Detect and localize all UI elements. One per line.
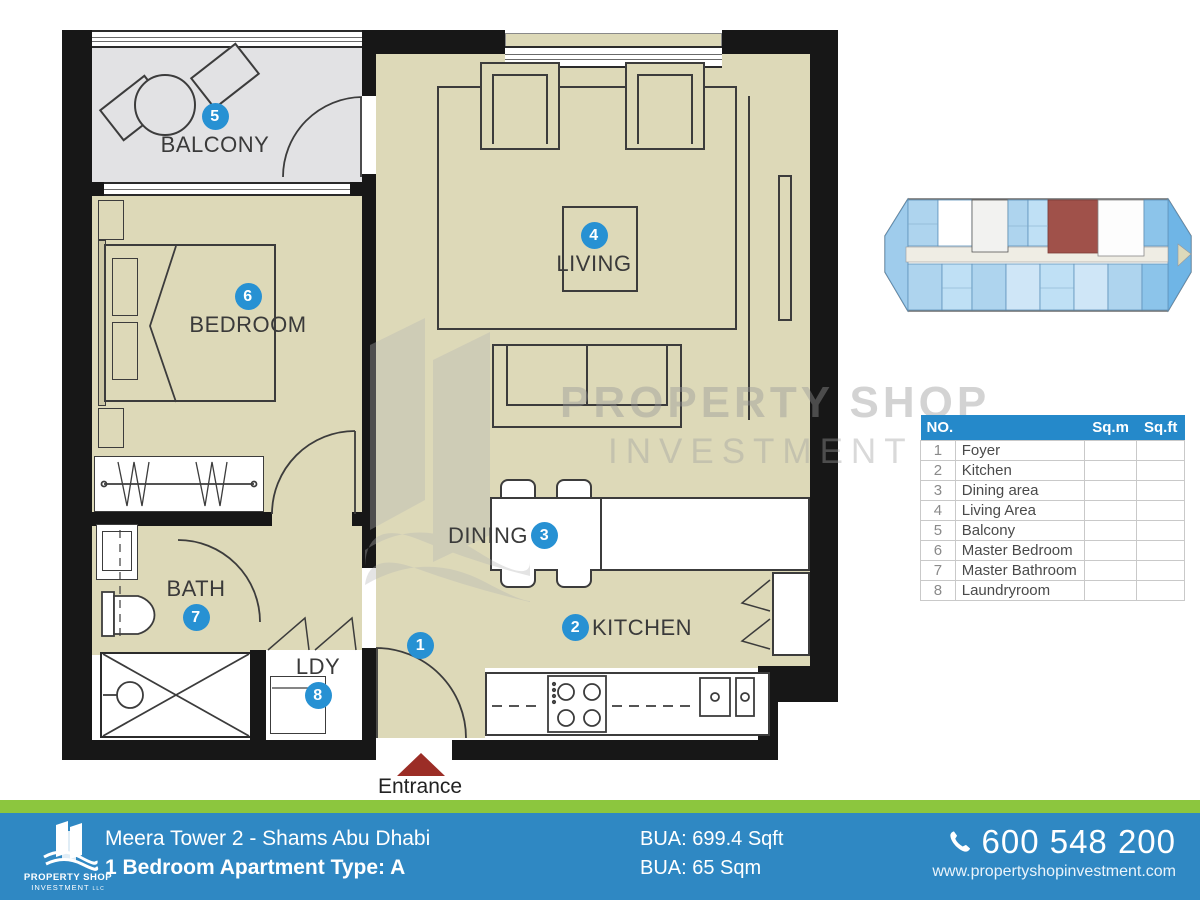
phone-row: 600 548 200	[932, 823, 1176, 861]
badge-ldy: 8	[305, 682, 332, 709]
table-row: 3Dining area	[921, 481, 1185, 501]
bua-sqm: BUA: 65 Sqm	[640, 857, 761, 880]
website: www.propertyshopinvestment.com	[932, 863, 1176, 881]
dining-label: DINING	[448, 523, 528, 549]
row-no: 3	[921, 481, 956, 501]
row-name: Balcony	[955, 521, 1084, 541]
property-shop-logo-icon	[22, 817, 114, 871]
footer-green-strip	[0, 800, 1200, 813]
logo-name: PROPERTY SHOP	[22, 872, 114, 883]
row-sqft	[1137, 441, 1185, 461]
armchair-2-inner	[637, 74, 693, 144]
row-sqm	[1084, 461, 1137, 481]
row-sqft	[1137, 521, 1185, 541]
bedroom-label: BEDROOM	[189, 312, 306, 338]
closet-column-line	[748, 96, 750, 420]
wall-left	[62, 30, 92, 760]
sofa-midline	[586, 346, 588, 404]
shower-floor	[100, 652, 252, 738]
row-no: 8	[921, 581, 956, 601]
dining-chair-2	[556, 479, 592, 498]
bedroom-window	[104, 182, 350, 196]
row-name: Laundryroom	[955, 581, 1084, 601]
phone-icon	[947, 829, 973, 855]
living-tag: 4 LIVING	[534, 222, 654, 277]
entrance-arrow	[397, 753, 445, 776]
wall-ldy-right	[362, 648, 376, 740]
footer-contact: 600 548 200 www.propertyshopinvestment.c…	[932, 823, 1176, 881]
bath-vanity-basin	[102, 531, 132, 571]
row-no: 1	[921, 441, 956, 461]
row-no: 2	[921, 461, 956, 481]
row-sqm	[1084, 541, 1137, 561]
unit-type: 1 Bedroom Apartment Type: A	[105, 856, 405, 880]
balcony-label: BALCONY	[161, 132, 270, 158]
wall-ldy-shower	[250, 650, 266, 740]
living-label: LIVING	[556, 251, 631, 277]
floorplan-flyer: { "colors": { "badge_blue": "#2791d3", "…	[0, 0, 1200, 900]
kitchen-tag: 2 KITCHEN	[562, 614, 692, 641]
badge-bath: 7	[183, 604, 210, 631]
row-name: Living Area	[955, 501, 1084, 521]
kitchen-label: KITCHEN	[592, 615, 692, 641]
area-table: NO. Sq.m Sq.ft 1Foyer 2Kitchen 3Dining a…	[920, 415, 1185, 601]
row-name: Master Bedroom	[955, 541, 1084, 561]
entrance-label: Entrance	[378, 775, 462, 799]
bath-label: BATH	[166, 576, 225, 602]
project-title: Meera Tower 2 - Shams Abu Dhabi	[105, 827, 430, 851]
row-no: 5	[921, 521, 956, 541]
balcony-tag: 5 BALCONY	[150, 103, 280, 158]
table-row: 2Kitchen	[921, 461, 1185, 481]
badge-kitchen: 2	[562, 614, 589, 641]
closet-column-shelf	[778, 175, 792, 321]
row-name: Master Bathroom	[955, 561, 1084, 581]
wall-bottom-main	[452, 740, 778, 760]
kitchen-peninsula	[600, 497, 810, 571]
badge-balcony: 5	[202, 103, 229, 130]
ldy-label: LDY	[296, 654, 340, 680]
row-sqft	[1137, 501, 1185, 521]
wall-balcwin-r	[350, 182, 362, 196]
kitchen-counter	[485, 672, 770, 736]
building-keyplan	[882, 196, 1194, 314]
row-sqft	[1137, 461, 1185, 481]
badge-bedroom: 6	[235, 283, 262, 310]
row-sqft	[1137, 481, 1185, 501]
badge-foyer: 1	[407, 632, 434, 659]
badge-dining: 3	[531, 522, 558, 549]
dining-tag: DINING 3	[448, 522, 558, 549]
bua-sqft: BUA: 699.4 Sqft	[640, 828, 783, 851]
row-name: Kitchen	[955, 461, 1084, 481]
pillow-2	[112, 322, 138, 380]
wall-bed-living-top	[362, 30, 376, 96]
row-sqm	[1084, 581, 1137, 601]
row-no: 7	[921, 561, 956, 581]
wall-balcwin-l	[92, 182, 104, 196]
table-row: 1Foyer	[921, 441, 1185, 461]
row-sqm	[1084, 561, 1137, 581]
row-name: Dining area	[955, 481, 1084, 501]
col-sqm: Sq.m	[1084, 415, 1137, 441]
footer-logo: PROPERTY SHOP INVESTMENT LLC	[22, 817, 114, 892]
footer-bar: PROPERTY SHOP INVESTMENT LLC Meera Tower…	[0, 813, 1200, 900]
col-no: NO.	[921, 415, 1085, 441]
wall-right	[810, 30, 838, 678]
badge-living: 4	[581, 222, 608, 249]
foyer-floor	[376, 668, 485, 738]
foyer-tag: 1	[407, 632, 434, 659]
watermark-building-icon	[365, 300, 530, 610]
table-row: 5Balcony	[921, 521, 1185, 541]
pillow-1	[112, 258, 138, 316]
row-sqm	[1084, 501, 1137, 521]
kitchen-closet	[772, 572, 810, 656]
row-sqft	[1137, 581, 1185, 601]
row-name: Foyer	[955, 441, 1084, 461]
row-no: 4	[921, 501, 956, 521]
table-row: 6Master Bedroom	[921, 541, 1185, 561]
col-sqft: Sq.ft	[1137, 415, 1185, 441]
ldy-tag: LDY 8	[283, 654, 353, 709]
nightstand-2	[98, 408, 124, 448]
logo-sub: INVESTMENT LLC	[22, 883, 114, 892]
balcony-railing	[92, 30, 362, 48]
row-no: 6	[921, 541, 956, 561]
row-sqm	[1084, 481, 1137, 501]
row-sqm	[1084, 441, 1137, 461]
table-row: 8Laundryroom	[921, 581, 1185, 601]
dining-chair-4	[556, 569, 592, 588]
wall-top-a	[362, 30, 505, 54]
row-sqft	[1137, 561, 1185, 581]
row-sqft	[1137, 541, 1185, 561]
table-row: 7Master Bathroom	[921, 561, 1185, 581]
armchair-1-inner	[492, 74, 548, 144]
nightstand-1	[98, 200, 124, 240]
wardrobe	[94, 456, 264, 512]
row-sqm	[1084, 521, 1137, 541]
area-table-header: NO. Sq.m Sq.ft	[921, 415, 1185, 441]
phone-number: 600 548 200	[981, 823, 1176, 861]
bath-tag: BATH 7	[151, 576, 241, 631]
wall-bottom-left	[92, 740, 376, 760]
bedroom-tag: 6 BEDROOM	[178, 283, 318, 338]
table-row: 4Living Area	[921, 501, 1185, 521]
living-window-sill	[505, 33, 722, 47]
